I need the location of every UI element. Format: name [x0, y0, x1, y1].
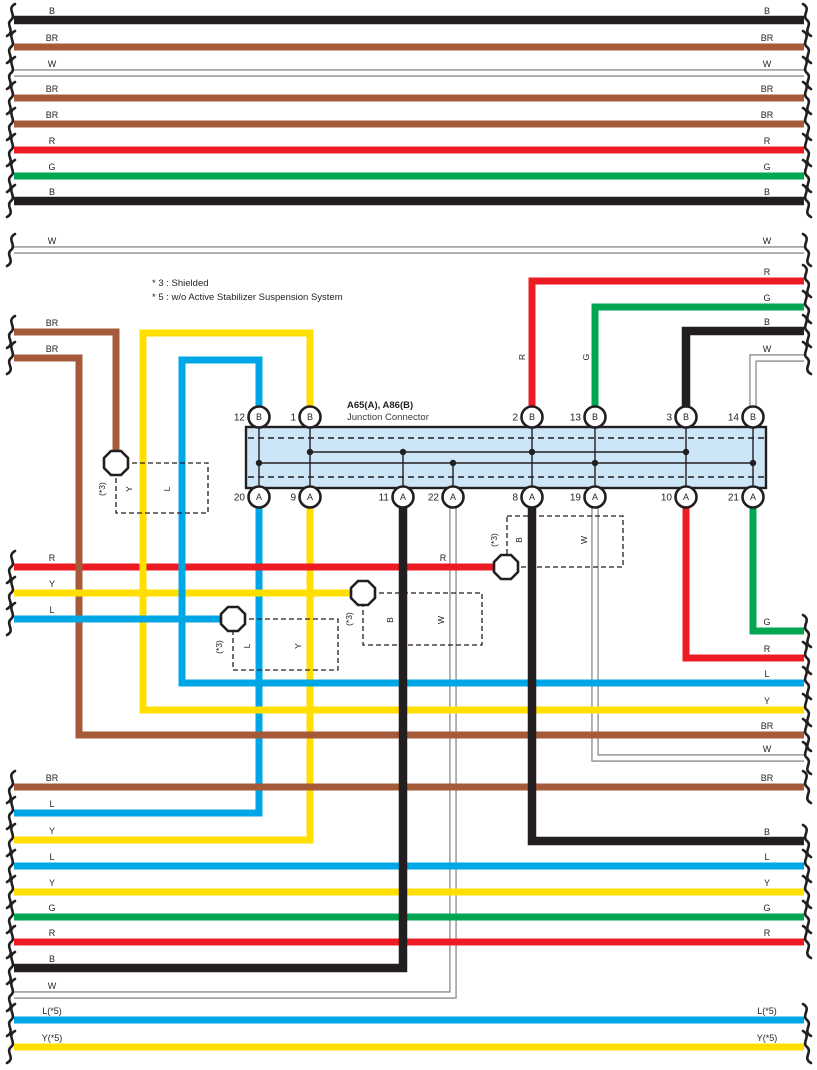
connector-subtitle: Junction Connector [347, 412, 429, 423]
pin-number: 8 [512, 493, 518, 504]
pin-letter: B [683, 412, 689, 422]
wire-blue-pin20 [14, 504, 259, 813]
wire-label-right: L [764, 669, 769, 679]
wire-label-right: R [764, 928, 771, 938]
pin-number: 20 [234, 493, 246, 504]
mid-wire-label-r: R [440, 553, 447, 563]
bus-junction-dot [529, 449, 535, 455]
wire-label-right: BR [761, 721, 774, 731]
wire-label-right: Y(*5) [757, 1033, 778, 1043]
shielded-wire-label: W [436, 616, 446, 624]
bus-junction-dot [750, 460, 756, 466]
bus-junction-dot [307, 449, 313, 455]
pin-letter: B [307, 412, 313, 422]
wire-label-right: B [764, 6, 770, 16]
pin-number: 14 [728, 413, 740, 424]
wire-label-left: W [48, 59, 57, 69]
wire-white-pin14-core [753, 358, 804, 410]
wire-label-right: BR [761, 84, 774, 94]
bus-junction-dot [683, 449, 689, 455]
diagram-text: A65(A), A86(B) Junction Connector * 3 : … [42, 6, 778, 1043]
right-wire-breaks [803, 4, 811, 1063]
wire-label-right: G [763, 293, 770, 303]
wire-label-left: W [48, 981, 57, 991]
wire-label-left: BR [46, 318, 59, 328]
shielded-wire-label: L [162, 486, 172, 491]
wire-label-right: G [763, 162, 770, 172]
shielded-wire-label: B [514, 537, 524, 543]
wire-label-left: G [48, 162, 55, 172]
wire-label-right: W [763, 236, 772, 246]
wire-label-left: BR [46, 84, 59, 94]
shield-box-3 [363, 593, 482, 645]
shield-tag: (*3) [97, 482, 107, 496]
wire-blue-pin12-hoop [182, 360, 804, 683]
wire-label-right: BR [761, 773, 774, 783]
shielded-wire-label: W [579, 536, 589, 544]
pin-number: 13 [570, 413, 582, 424]
wire-green-pin21 [753, 504, 804, 631]
shield-octagon-4 [494, 555, 518, 579]
pin-number: 10 [661, 493, 673, 504]
wire-label-left: Y [49, 826, 55, 836]
wire-label-right: G [763, 617, 770, 627]
wire-label-right: B [764, 317, 770, 327]
pin-letter: B [256, 412, 262, 422]
pin-number: 12 [234, 413, 246, 424]
wire-label-left: L [49, 852, 54, 862]
left-wire-breaks [7, 4, 15, 1063]
bus-junction-dot [256, 460, 262, 466]
wiring-diagram-page: A65(A), A86(B) Junction Connector * 3 : … [0, 0, 817, 1070]
wire-label-right: BR [761, 110, 774, 120]
pin-letter: A [256, 492, 262, 502]
wire-label-right: R [764, 267, 771, 277]
bus-junction-dot [450, 460, 456, 466]
wire-label-right: B [764, 187, 770, 197]
wire-label-right: L(*5) [757, 1006, 777, 1016]
wire-label-left: G [48, 903, 55, 913]
pin-letter: B [750, 412, 756, 422]
wire-label-left: BR [46, 110, 59, 120]
shield-tag: (*3) [344, 612, 354, 626]
shield-octagon-3 [351, 581, 375, 605]
wire-label-left: Y(*5) [42, 1033, 63, 1043]
pin-letter: A [307, 492, 313, 502]
wire-black-pin3 [686, 331, 804, 410]
pin-letter: A [529, 492, 535, 502]
connector-title: A65(A), A86(B) [347, 400, 413, 411]
wire-label-left: B [49, 6, 55, 16]
squiggle [803, 234, 811, 266]
bus-junction-dot [592, 460, 598, 466]
pin-letter: B [529, 412, 535, 422]
junction-connector-body [246, 427, 766, 488]
wire-label-left: B [49, 954, 55, 964]
wire-label-left: Y [49, 878, 55, 888]
shielded-wire-label: L [242, 643, 252, 648]
wire-label-right: BR [761, 33, 774, 43]
pin-letter: A [400, 492, 406, 502]
wire-label-right: Y [764, 878, 770, 888]
shielded-wire-label: Y [124, 486, 134, 492]
shield-tag: (*3) [214, 640, 224, 654]
wire-label-right: W [763, 344, 772, 354]
pin-number: 1 [290, 413, 296, 424]
wire-label-left: R [49, 928, 56, 938]
shielded-wire-label: B [385, 617, 395, 623]
vertical-wire-label-r: R [517, 354, 527, 360]
wire-white-pin14 [753, 358, 804, 410]
wire-label-right: R [764, 136, 771, 146]
vertical-wire-label-g: G [581, 354, 591, 361]
wire-label-right: W [763, 59, 772, 69]
wire-label-right: L [764, 852, 769, 862]
shield-tag: (*3) [489, 533, 499, 547]
wire-label-right: R [764, 644, 771, 654]
wire-label-left: L [49, 799, 54, 809]
wiring-diagram: A65(A), A86(B) Junction Connector * 3 : … [0, 0, 817, 1070]
wire-label-right: W [763, 744, 772, 754]
squiggle [803, 771, 811, 803]
wire-red-pin10 [686, 504, 804, 658]
wire-brown-to-shield [14, 332, 116, 452]
wire-yellow-pin1-hoop [143, 333, 804, 710]
bus-junction-dot [400, 449, 406, 455]
pin-letter: A [592, 492, 598, 502]
pin-letter: A [750, 492, 756, 502]
wire-label-left: R [49, 136, 56, 146]
diagram-note-stabilizer: * 5 : w/o Active Stabilizer Suspension S… [152, 292, 343, 303]
pin-number: 11 [379, 493, 390, 504]
wire-runs [14, 20, 804, 1047]
pin-letter: A [450, 492, 456, 502]
wire-label-right: B [764, 827, 770, 837]
squiggle [7, 234, 15, 266]
pin-letter: A [683, 492, 689, 502]
pin-number: 9 [290, 493, 296, 504]
pin-number: 2 [512, 413, 518, 424]
shield-box-4 [507, 516, 623, 567]
shield-octagon-2 [221, 607, 245, 631]
wire-label-left: BR [46, 773, 59, 783]
wire-label-left: BR [46, 344, 59, 354]
pin-letter: B [592, 412, 598, 422]
squiggle [803, 742, 811, 774]
wire-label-left: L [49, 605, 54, 615]
pin-number: 3 [666, 413, 672, 424]
pin-number: 21 [728, 493, 740, 504]
shield-octagon-1 [104, 451, 128, 475]
wire-label-right: Y [764, 696, 770, 706]
wire-label-right: G [763, 903, 770, 913]
wire-label-left: W [48, 236, 57, 246]
pin-number: 19 [570, 493, 582, 504]
wire-label-left: Y [49, 579, 55, 589]
wire-label-left: BR [46, 33, 59, 43]
wire-label-left: B [49, 187, 55, 197]
diagram-note-shielded: * 3 : Shielded [152, 278, 209, 289]
shielded-wire-label: Y [293, 643, 303, 649]
pin-number: 22 [428, 493, 440, 504]
wire-label-left: L(*5) [42, 1006, 62, 1016]
wire-label-left: R [49, 553, 56, 563]
